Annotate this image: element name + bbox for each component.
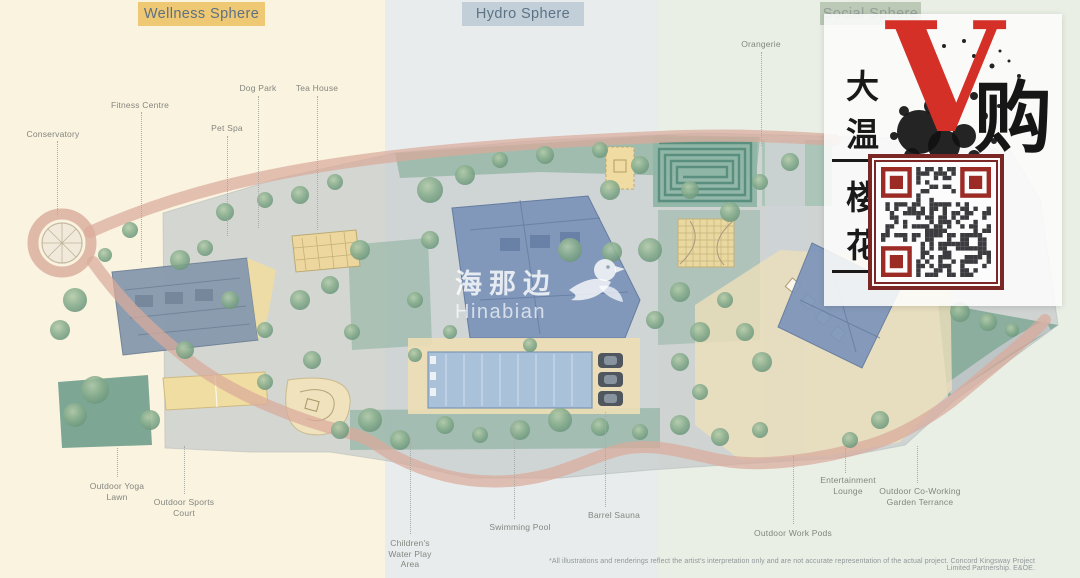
qr-modules — [881, 167, 991, 277]
leader-tea-house — [317, 96, 318, 230]
label-swimming-pool: Swimming Pool — [475, 522, 565, 533]
leader-outdoor-work-pods — [793, 456, 794, 524]
leader-dog-park — [258, 96, 259, 228]
leader-childrens-water-play-area — [410, 438, 411, 534]
zone-header-wellness: Wellness Sphere — [138, 2, 265, 26]
site-plan-canvas: Wellness Sphere Hydro Sphere Social Sphe… — [0, 0, 1080, 578]
label-outdoor-yoga-lawn: Outdoor Yoga Lawn — [87, 481, 147, 502]
bird-logo-icon — [559, 256, 655, 320]
label-outdoor-co-working: Outdoor Co-Working Garden Terrance — [874, 486, 966, 507]
barrel-saunas — [598, 353, 623, 406]
qr-code-inner-frame — [874, 160, 998, 284]
leader-orangerie — [761, 52, 762, 146]
disclaimer-text: *All illustrations and renderings reflec… — [545, 558, 1035, 572]
leader-pet-spa — [227, 136, 228, 236]
tea-house-deck — [292, 230, 360, 272]
label-childrens-water-play-area: Children's Water Play Area — [383, 538, 437, 570]
label-dog-park: Dog Park — [228, 83, 288, 94]
leader-entertainment-lounge — [845, 443, 846, 473]
label-fitness-centre: Fitness Centre — [100, 100, 180, 111]
hedge-maze — [653, 137, 757, 207]
leader-outdoor-co-working — [917, 446, 918, 483]
leader-outdoor-yoga-lawn — [117, 448, 118, 477]
label-outdoor-sports-court: Outdoor Sports Court — [143, 497, 225, 518]
promo-gou-character: 购 — [974, 56, 1052, 168]
leader-barrel-sauna — [605, 412, 606, 507]
label-barrel-sauna: Barrel Sauna — [573, 510, 655, 521]
promo-overlay: 大温 楼花 V 购 — [824, 14, 1062, 306]
leader-outdoor-sports-court — [184, 446, 185, 494]
leader-conservatory — [57, 141, 58, 215]
watermark: 海那边 Hinabian — [455, 262, 655, 324]
label-outdoor-work-pods: Outdoor Work Pods — [737, 528, 849, 539]
leader-swimming-pool — [514, 421, 515, 519]
conservatory-structure — [42, 223, 82, 263]
label-orangerie: Orangerie — [726, 39, 796, 50]
label-conservatory: Conservatory — [13, 129, 93, 140]
leader-fitness-centre — [141, 112, 142, 262]
qr-code — [868, 154, 1004, 290]
zone-header-hydro: Hydro Sphere — [462, 2, 584, 26]
label-pet-spa: Pet Spa — [197, 123, 257, 134]
checkered-patio — [678, 219, 734, 267]
label-tea-house: Tea House — [287, 83, 347, 94]
